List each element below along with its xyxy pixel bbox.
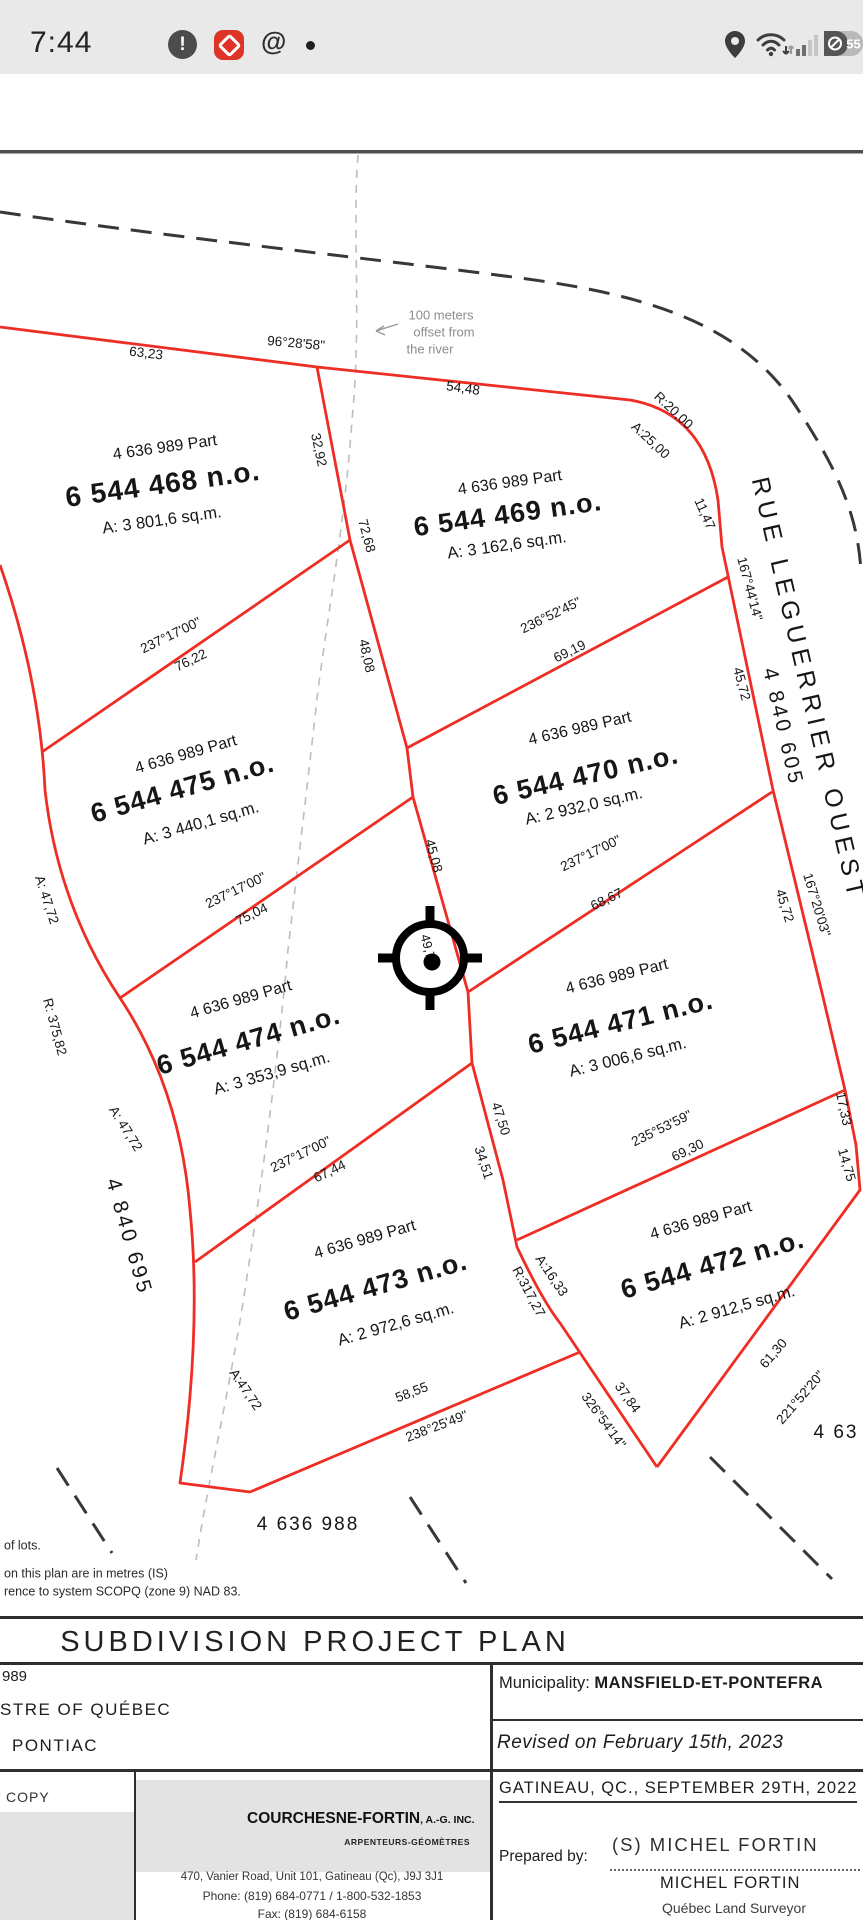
dim-label: A: 47,72	[106, 1103, 145, 1154]
sheet-border	[0, 150, 863, 154]
dim-label: 17,33	[833, 1091, 855, 1127]
lot-part: 4 636 989 Part	[112, 432, 219, 464]
location-icon	[722, 30, 748, 60]
dim-label: 61,30	[757, 1336, 790, 1371]
lot-area: A: 2 912,5 sq.m.	[677, 1282, 797, 1332]
plan-note: rence to system SCOPQ (zone 9) NAD 83.	[4, 1584, 241, 1598]
cursor-arrow-icon	[791, 1822, 820, 1870]
dim-label: 236°52'45"	[518, 594, 583, 636]
title-block: SUBDIVISION PROJECT PLAN 989 STRE OF QUÉ…	[0, 1616, 863, 1920]
dim-label: 45,08	[422, 837, 445, 874]
cadastre-number: 4 63	[814, 1422, 859, 1443]
dim-label: 34,51	[472, 1144, 497, 1181]
dim-label: A: 47,72	[32, 873, 62, 925]
title-block-decor	[0, 1616, 863, 1920]
lot-part: 4 636 989 Part	[312, 1217, 418, 1262]
recording-dot	[306, 41, 315, 50]
dim-label: A:25,00	[629, 419, 673, 462]
dim-label: 75,04	[233, 900, 270, 929]
river-offset-dashed-line	[196, 155, 358, 1560]
cell-signal-icon	[796, 30, 822, 58]
cadastre-number: 4 840 695	[101, 1176, 156, 1298]
company-logo	[169, 1788, 237, 1848]
lot-number: 6 544 469 n.o.	[412, 486, 604, 542]
dim-label: 37,84	[612, 1379, 644, 1416]
dim-label: 237°17'00"	[558, 832, 623, 874]
surveyor-seal	[0, 1835, 80, 1920]
dim-label: 47,50	[489, 1100, 514, 1137]
lot-number: 6 544 468 n.o.	[63, 455, 262, 513]
battery-icon: 55	[824, 31, 863, 56]
crosshair-marker	[378, 906, 482, 1010]
dim-label: A:47,72	[227, 1366, 265, 1413]
cadastre-number: 4 636 988	[257, 1514, 360, 1535]
dim-label: 58,55	[393, 1379, 430, 1405]
dim-label: 32,92	[308, 432, 330, 468]
notification-exclamation-icon: !	[168, 30, 197, 59]
dim-label: 96°28'58"	[267, 333, 326, 353]
river-note-arrow	[376, 324, 398, 335]
dim-label: 14,75	[835, 1146, 859, 1183]
dim-label: 54,48	[445, 378, 481, 398]
river-note: 100 meters	[408, 307, 474, 322]
dim-label: 67,44	[311, 1157, 348, 1186]
plan-viewport[interactable]: 63,2396°28'58"54,48R:20,00A:25,0011,4716…	[0, 0, 863, 1620]
dim-label: 11,47	[691, 496, 718, 532]
signature-squiggle	[640, 1836, 806, 1862]
threads-icon: @	[261, 26, 286, 57]
dim-label: 48,08	[356, 638, 378, 674]
red-app-icon	[214, 30, 244, 60]
battery-percent: 55	[846, 37, 860, 52]
boundary-dashed-line	[0, 212, 861, 1583]
lot-part: 4 636 989 Part	[527, 709, 634, 749]
lot-part: 4 636 989 Part	[564, 956, 671, 998]
lot-area: A: 3 801,6 sq.m.	[101, 503, 222, 538]
dim-label: 45,72	[773, 887, 797, 924]
dim-label: R: 375,82	[40, 997, 70, 1057]
plan-note: on this plan are in metres (IS)	[4, 1566, 168, 1580]
dim-label: 68,67	[588, 885, 625, 913]
dim-label: 69,30	[669, 1136, 706, 1164]
river-note: the river	[407, 341, 455, 356]
status-bar: 7:44 ! @ 55	[0, 0, 863, 74]
dim-label: 72,68	[355, 517, 378, 554]
dim-label: 221°52'20"	[773, 1368, 827, 1427]
lot-part: 4 636 989 Part	[648, 1198, 754, 1243]
subdivision-plan-drawing: 63,2396°28'58"54,48R:20,00A:25,0011,4716…	[0, 0, 863, 1620]
plan-note: of lots.	[4, 1538, 41, 1552]
dim-label: R:20,00	[651, 389, 696, 432]
phone-screen: 7:44 ! @ 55	[0, 0, 863, 1920]
wifi-icon	[756, 30, 794, 60]
dim-label: 167°44'14"	[734, 555, 765, 622]
river-note: offset from	[413, 324, 474, 339]
clock-time: 7:44	[30, 26, 92, 60]
dim-label: 63,23	[128, 344, 163, 363]
dim-label: 45,72	[730, 665, 753, 702]
